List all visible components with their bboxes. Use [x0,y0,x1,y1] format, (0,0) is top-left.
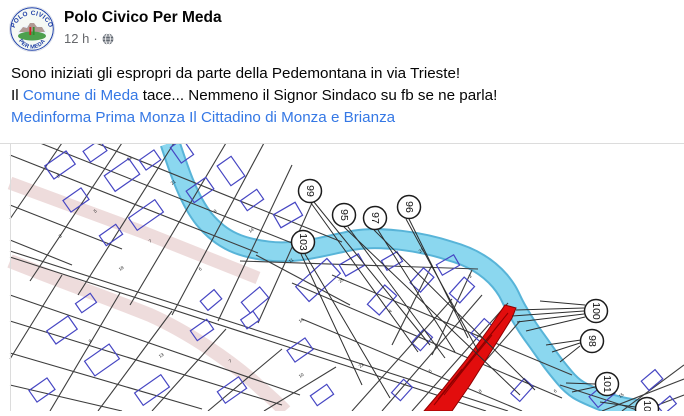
parcel-line [432,270,472,355]
post-text: Sono iniziati gli espropri da parte dell… [11,65,460,82]
leader-line [552,343,580,352]
parcel-marker-label: 95 [338,209,350,221]
post-link[interactable]: Medinforma [11,109,91,126]
post-image[interactable]: 8125219147318611254169137102258615312999… [0,143,684,411]
building-outline [135,375,170,406]
post-link[interactable]: Prima Monza [95,109,184,126]
parcel-marker-label: 99 [304,185,316,197]
parcel-marker-label: 98 [586,335,598,347]
parcel-marker-label: 102 [641,400,653,411]
building-outline [641,370,663,391]
post-link[interactable]: Comune di Meda [23,87,139,104]
parcel-marker-label: 96 [403,201,415,213]
globe-icon [102,33,114,45]
building-outline [240,189,263,210]
parcel-line [10,275,62,359]
building-outline [410,268,434,292]
timestamp[interactable]: 12 h [64,31,89,46]
building-outline [381,252,402,271]
parcel-number: 13 [158,352,165,359]
parcel-line [98,311,172,411]
building-outline [83,143,107,162]
parcel-marker-label: 103 [297,233,309,251]
map-svg: 8125219147318611254169137102258615312999… [0,143,684,411]
meta-separator: · [93,31,97,46]
parcel-number: 6 [198,266,203,272]
road [10,261,285,411]
facebook-post: POLO CIVICO PER MEDA Polo Civico Per Med… [0,0,684,411]
building-outline [217,156,245,185]
building-outline [367,285,396,315]
page-avatar[interactable]: POLO CIVICO PER MEDA [9,6,55,52]
parcel-number: 16 [298,317,305,324]
parcel-line [30,143,122,281]
leader-line [301,254,362,385]
building-outline [310,384,333,405]
post-text: tace... Nemmeno il Signor Sindaco su fb … [139,87,498,104]
parcel-number: 6 [553,388,558,394]
parcel-marker-label: 97 [369,212,381,224]
building-outline [658,396,677,411]
parcel-line [10,385,122,411]
post-body: Sono iniziati gli espropri da parte dell… [11,63,676,129]
parcel-marker-label: 100 [590,302,602,320]
parcel-number: 18 [118,265,125,272]
leader-line [540,301,585,305]
parcel-number: 10 [298,372,305,379]
building-outline [139,150,161,170]
post-link[interactable]: Il Cittadino di Monza e Brianza [189,109,395,126]
post-meta: 12 h · [64,31,114,46]
building-outline [200,290,222,311]
post-text: Il [11,87,23,104]
building-outline [296,259,341,302]
page-name[interactable]: Polo Civico Per Meda [64,9,222,27]
parcel-marker-label: 101 [601,375,613,393]
building-outline [392,379,413,400]
building-outline [85,344,120,376]
